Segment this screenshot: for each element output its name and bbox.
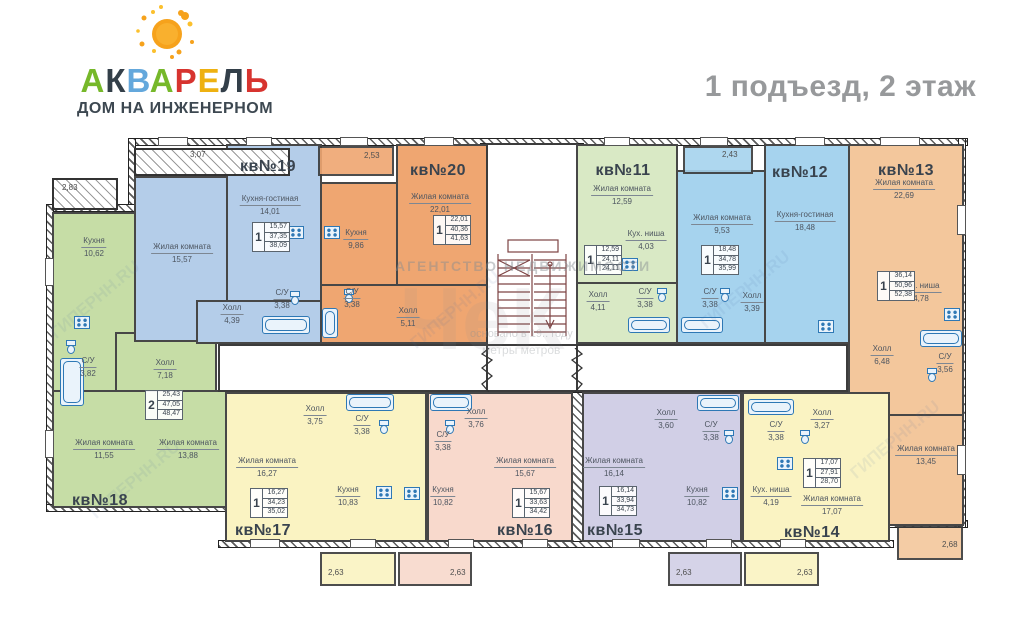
apartment-number-kv20: кв№20 [410, 162, 466, 180]
room-label: С/У3,38 [273, 288, 290, 310]
stove-icon [288, 226, 304, 239]
window-marker [957, 445, 966, 475]
apartment-info-kv15: 1 16,1433,9434,73 [599, 486, 637, 516]
apartment-info-kv13: 1 36,1450,9652,38 [877, 271, 915, 301]
room-label: Холл4,39 [221, 303, 244, 325]
brand-logo-text: АКВАРЕЛЬ [55, 62, 295, 100]
brand-letter: К [105, 62, 126, 99]
window-marker [522, 539, 548, 548]
bathtub-icon [262, 316, 310, 334]
apartment-info-kv16: 1 15,6733,6334,42 [512, 488, 550, 518]
dimension-label: 2,43 [722, 150, 738, 159]
apartment-number-kv14: кв№14 [784, 524, 840, 542]
room-label: Кухня-гостиная14,01 [240, 194, 301, 216]
brand-letter: В [127, 62, 150, 99]
bathtub-icon [681, 317, 723, 333]
sun-splash-icon [130, 4, 202, 62]
bathtub-icon [346, 394, 394, 411]
toilet-icon [720, 288, 730, 302]
room-label: С/У3,82 [79, 356, 96, 378]
apartment-info-kv18: 2 25,4347,0548,47 [145, 390, 183, 420]
room-label: Жилая комната11,55 [73, 438, 135, 460]
expansion-joint [571, 348, 583, 392]
apartment-info-kv20: 1 22,0140,3641,63 [433, 215, 471, 245]
toilet-icon [724, 430, 734, 444]
stove-icon [404, 487, 420, 500]
room-label: Жилая комната13,45 [895, 444, 957, 466]
balcony-kv12 [683, 146, 753, 174]
room-label: Жилая комната9,53 [691, 213, 753, 235]
dimension-label: 2,63 [328, 568, 344, 577]
room-label: Жилая комната17,07 [801, 494, 863, 516]
room-label: Кухня10,83 [335, 485, 360, 507]
room-label: Жилая комната16,27 [236, 456, 298, 478]
room-label: Кух. ниша4,19 [751, 485, 792, 507]
room-label: Кухня10,82 [430, 485, 455, 507]
window-marker [250, 539, 280, 548]
brand-letter: Ь [245, 62, 270, 99]
floor-plan-page: { "header": { "brand_letters": [ {"ch":"… [0, 0, 1024, 620]
room-label: Кух. ниша4,03 [626, 229, 667, 251]
window-marker [706, 539, 732, 548]
room-label: Кухня9,86 [343, 228, 368, 250]
stove-icon [944, 308, 960, 321]
room-label: Холл3,76 [465, 407, 488, 429]
apartment-number-kv19: кв№19 [240, 158, 296, 176]
apartment-number-kv18: кв№18 [72, 492, 128, 510]
stove-icon [74, 316, 90, 329]
dimension-label: 2,68 [942, 540, 958, 549]
apartment-info-kv11: 1 12,5924,1124,11 [584, 245, 622, 275]
room-label: С/У3,38 [701, 287, 718, 309]
room-label: Кухня-гостиная18,48 [775, 210, 836, 232]
stove-icon [622, 258, 638, 271]
room-label: Жилая комната15,67 [494, 456, 556, 478]
apartment-info-kv12: 1 18,4834,7835,99 [701, 245, 739, 275]
room-label: Холл7,18 [154, 358, 177, 380]
dimension-label: 2,53 [364, 151, 380, 160]
room-label: Холл3,39 [741, 291, 764, 313]
room-label: С/У3,56 [936, 352, 953, 374]
apartment-info-kv19: 1 15,5737,3538,09 [252, 222, 290, 252]
window-marker [700, 137, 728, 146]
dimension-label: 2,63 [450, 568, 466, 577]
floor-title: 1 подъезд, 2 этаж [705, 70, 976, 104]
room-label: Холл4,11 [587, 290, 610, 312]
window-marker [45, 430, 54, 458]
window-marker [612, 539, 640, 548]
brand-letter: Л [221, 62, 245, 99]
apartment-number-kv12: кв№12 [772, 164, 828, 182]
apartment-info-kv14: 1 17,0727,9128,70 [803, 458, 841, 488]
entrance-vestibule [486, 346, 578, 392]
room-label: С/У3,38 [636, 287, 653, 309]
brand-letter: А [150, 62, 175, 99]
toilet-icon [290, 291, 300, 305]
toilet-icon [657, 288, 667, 302]
expansion-joint [481, 348, 493, 392]
room-label: Кухня10,82 [684, 485, 709, 507]
room-label: С/У3,38 [353, 414, 370, 436]
window-marker [448, 539, 474, 548]
balcony-kv20 [318, 146, 394, 176]
brand-letter: Р [175, 62, 198, 99]
room-label: Жилая комната16,14 [583, 456, 645, 478]
staircase [492, 238, 572, 342]
room-label: Холл3,27 [811, 408, 834, 430]
toilet-icon [66, 340, 76, 354]
room-label: Кухня10,62 [81, 236, 106, 258]
stove-icon [777, 457, 793, 470]
window-marker [45, 258, 54, 286]
bathtub-icon [628, 317, 670, 333]
stove-icon [818, 320, 834, 333]
room-label: Холл3,75 [304, 404, 327, 426]
window-marker [424, 137, 454, 146]
dimension-label: 2,63 [676, 568, 692, 577]
room-label: Жилая комната22,69 [873, 178, 935, 200]
window-marker [350, 539, 376, 548]
stove-icon [376, 486, 392, 499]
window-marker [957, 205, 966, 235]
room-label: Жилая комната12,59 [591, 184, 653, 206]
bathtub-icon [748, 399, 794, 415]
brand-letter: А [81, 62, 106, 99]
stove-icon [722, 487, 738, 500]
window-marker [340, 137, 368, 146]
room-label: Холл5,11 [397, 306, 420, 328]
window-marker [246, 137, 272, 146]
apartment-number-kv15: кв№15 [587, 522, 643, 540]
room-label: Холл6,48 [871, 344, 894, 366]
toilet-icon [800, 430, 810, 444]
room-label: С/У3,38 [343, 287, 360, 309]
room-label: С/У3,38 [702, 420, 719, 442]
apartment-number-kv11: кв№11 [595, 162, 650, 180]
room-label: Жилая комната13,88 [157, 438, 219, 460]
window-marker [158, 137, 188, 146]
room-label: С/У3,38 [434, 430, 451, 452]
room-label: Жилая комната22,01 [409, 192, 471, 214]
apartment-number-kv17: кв№17 [235, 522, 291, 540]
window-marker [880, 137, 920, 146]
room-label: С/У3,38 [767, 420, 784, 442]
stove-icon [324, 226, 340, 239]
room-label: Холл3,60 [655, 408, 678, 430]
brand-letter: Е [198, 62, 221, 99]
dimension-label: 3,07 [190, 150, 206, 159]
bathtub-icon [920, 330, 962, 347]
window-marker [795, 137, 825, 146]
room-label: Жилая комната15,57 [151, 242, 213, 264]
dimension-label: 2,63 [797, 568, 813, 577]
dimension-label: 2,83 [62, 183, 78, 192]
window-marker [604, 137, 630, 146]
apartment-kv13-area[interactable] [886, 414, 964, 526]
toilet-icon [379, 420, 389, 434]
bathtub-icon [322, 308, 338, 338]
apartment-number-kv16: кв№16 [497, 522, 553, 540]
brand-subtitle: ДОМ НА ИНЖЕНЕРНОМ [55, 100, 295, 118]
apartment-info-kv17: 1 16,2734,2335,02 [250, 488, 288, 518]
bathtub-icon [697, 395, 739, 411]
